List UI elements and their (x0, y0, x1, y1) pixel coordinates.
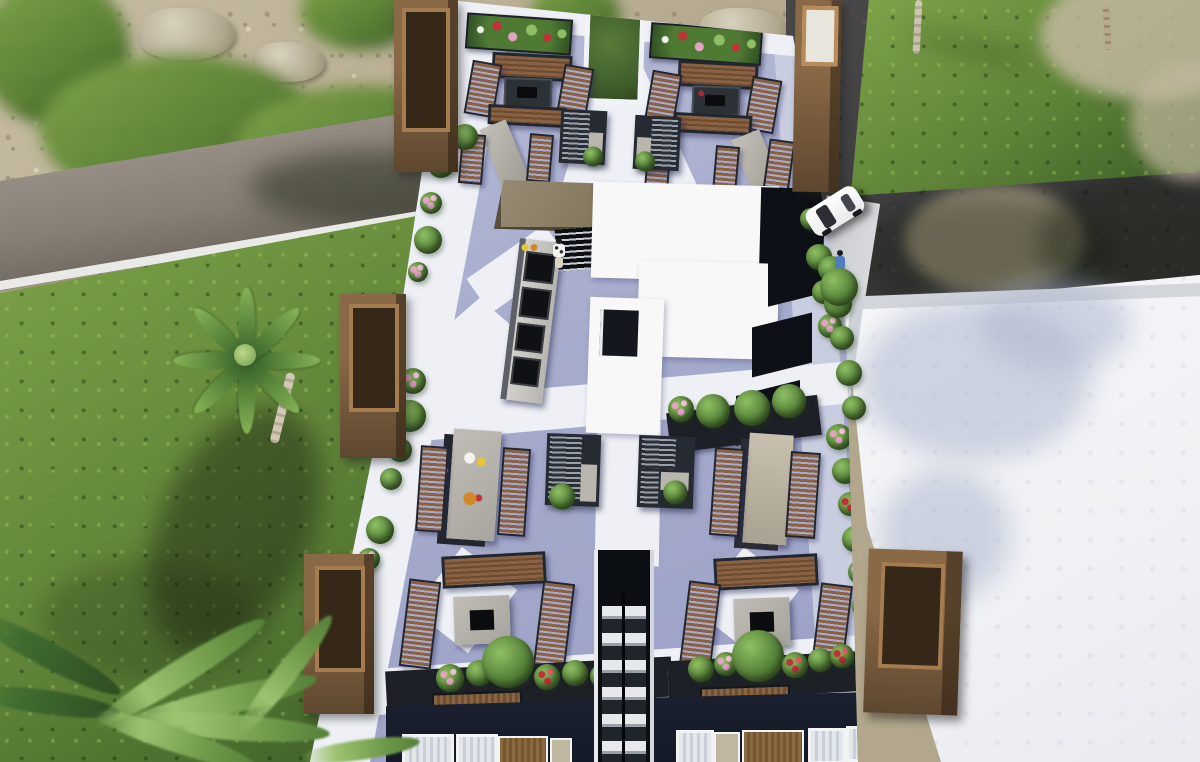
parapet-flowers (436, 664, 464, 692)
sofa-slats (641, 438, 676, 469)
facade-window (808, 728, 846, 762)
dining-bench (497, 447, 531, 537)
edge-flowers (826, 424, 852, 450)
facade-window (846, 726, 872, 762)
car-windshield (815, 204, 838, 230)
sofa-planter-bush (582, 146, 603, 167)
person-legs (555, 257, 563, 268)
planter-tower-mid-left (340, 294, 406, 458)
dining-table (446, 428, 502, 541)
palm-crown (234, 344, 256, 366)
slat-bench (399, 578, 441, 669)
fire-pit-bowl (470, 610, 495, 631)
facade-wood-door (742, 730, 804, 762)
sofa-slats (640, 471, 659, 504)
penthouse-door (599, 309, 639, 356)
table-fruit-bowl (461, 491, 484, 507)
planter-flowers (668, 396, 694, 422)
parapet-bush (688, 656, 714, 682)
fire-pit-table (691, 85, 740, 117)
parapet-bush (562, 660, 588, 686)
rock (140, 8, 235, 60)
facade-panel (550, 738, 572, 762)
parapet-bush-large (482, 636, 534, 688)
facade-window (456, 734, 498, 762)
planter-bush (772, 384, 806, 418)
edge-bush (832, 458, 858, 484)
wood-bench (441, 551, 547, 588)
car-rear-glass (840, 193, 857, 213)
l-shaped-sofa (559, 109, 608, 165)
planter-bush (734, 390, 770, 426)
street-shrub (820, 268, 858, 306)
fire-pit-table (503, 77, 552, 109)
l-shaped-sofa (545, 433, 601, 507)
facade-wood-door (498, 736, 548, 762)
walkway-bush (842, 396, 866, 420)
wood-bench (674, 112, 753, 136)
planter-bush (696, 394, 730, 428)
edge-flowers (420, 192, 442, 214)
tree-shadow-on-roof (980, 280, 1130, 370)
l-shaped-sofa (637, 435, 695, 509)
dining-bench (415, 445, 449, 533)
sun-lounger (526, 133, 554, 183)
slat-bench (785, 451, 821, 539)
l-shaped-sofa (633, 115, 682, 171)
tower-opening (878, 562, 946, 670)
aerial-architectural-render (0, 0, 1200, 762)
edge-bush (380, 468, 402, 490)
facade-window (676, 730, 714, 762)
sofa-planter-bush (549, 483, 576, 510)
sofa-planter-bush (635, 151, 656, 172)
planter-tower-top-left (394, 0, 458, 172)
sofa-cushion (580, 464, 597, 502)
street-facade-right (650, 692, 868, 762)
wood-bench (713, 553, 819, 590)
sofa-planter-bush (663, 480, 688, 505)
grill (514, 322, 545, 353)
slat-bench (709, 447, 745, 537)
stair-access-shaft (594, 550, 654, 762)
parapet-flowers (782, 652, 808, 678)
parapet-flowers (830, 644, 854, 668)
person-torso (553, 244, 565, 257)
parapet-bush (808, 648, 832, 672)
edge-bush (414, 226, 442, 254)
walkway-bush (836, 360, 862, 386)
palm-tree (160, 280, 340, 460)
street-facade-left (386, 700, 600, 762)
flower-planter (465, 12, 573, 55)
parapet-flowers (534, 664, 560, 690)
planter-tower-bottom-right (863, 548, 963, 715)
facade-panel (714, 732, 740, 762)
fire-pit-bowl (705, 95, 725, 107)
planter-tower-top-right (792, 0, 841, 192)
grill (518, 287, 551, 320)
tower-opening (402, 8, 450, 132)
walkway-bush (830, 326, 854, 350)
stair-rail (622, 590, 625, 762)
edge-bush (366, 516, 394, 544)
edge-flowers (838, 492, 862, 516)
tower-opening (349, 304, 399, 412)
table-plates (461, 451, 488, 469)
wine-set (698, 90, 704, 96)
edge-flowers (408, 262, 428, 282)
fire-pit-bowl (517, 87, 537, 99)
grill (510, 356, 541, 387)
bar-food-items (520, 243, 540, 252)
edge-bush (842, 526, 868, 552)
parapet-bush-large (732, 630, 784, 682)
tower-opening (802, 6, 839, 67)
flowers (467, 14, 571, 53)
person-at-bar (552, 238, 566, 268)
